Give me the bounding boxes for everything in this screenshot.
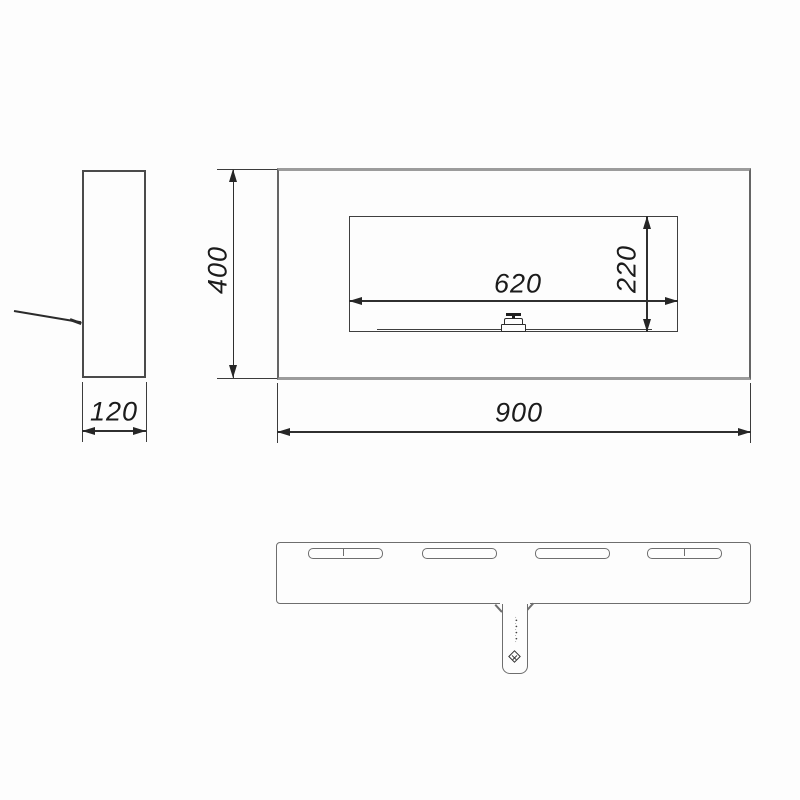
dimension-label-900: 900: [495, 398, 543, 429]
power-cord-tip: [69, 318, 81, 325]
technical-drawing: 120 620 220: [0, 0, 800, 800]
knob-base: [501, 324, 526, 332]
dimension-line: [277, 431, 751, 433]
arrowhead-right: [665, 297, 678, 305]
dimension-label-400: 400: [203, 246, 234, 294]
vent-slot: [422, 548, 497, 559]
side-view-outline: [82, 170, 146, 378]
dimension-label-120: 120: [90, 397, 138, 428]
dimension-label-220: 220: [612, 245, 643, 293]
extension-line: [217, 169, 277, 170]
arrowhead-down: [229, 365, 237, 378]
arrowhead-left: [349, 297, 362, 305]
arrowhead-up: [643, 216, 651, 229]
arrowhead-left: [277, 428, 290, 436]
dimension-line: [349, 300, 678, 302]
arrowhead-right: [133, 427, 146, 435]
arrowhead-right: [738, 428, 751, 436]
dimension-line: [646, 216, 648, 332]
extension-line: [217, 378, 277, 379]
vent-slot-divider: [684, 549, 685, 556]
dimension-label-620: 620: [494, 269, 542, 300]
arrowhead-down: [643, 319, 651, 332]
arrowhead-left: [82, 427, 95, 435]
vent-slot: [535, 548, 610, 559]
arrowhead-up: [229, 169, 237, 182]
tab-engraving-text: ·•·•·•·•·: [512, 616, 518, 643]
vent-slot: [308, 548, 383, 559]
vent-slot-divider: [343, 549, 344, 556]
